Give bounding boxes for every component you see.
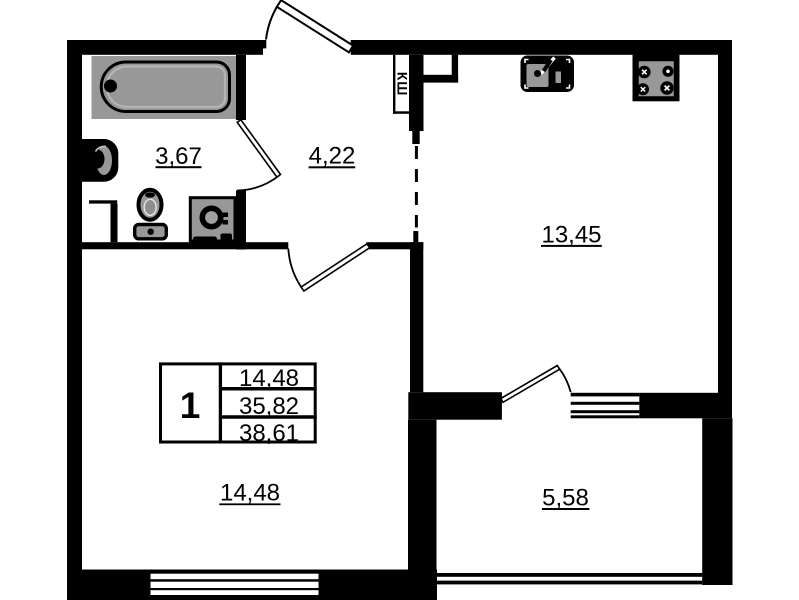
svg-text:38,61: 38,61 (239, 420, 299, 447)
svg-text:35,82: 35,82 (239, 393, 299, 420)
svg-text:4,22: 4,22 (309, 143, 356, 170)
svg-text:14,48: 14,48 (239, 365, 299, 392)
svg-text:14,48: 14,48 (220, 480, 280, 507)
svg-text:13,45: 13,45 (541, 222, 601, 249)
svg-text:3,67: 3,67 (155, 143, 202, 170)
svg-text:1: 1 (180, 385, 201, 426)
svg-text:КШ: КШ (394, 72, 410, 97)
svg-text:5,58: 5,58 (542, 485, 589, 512)
